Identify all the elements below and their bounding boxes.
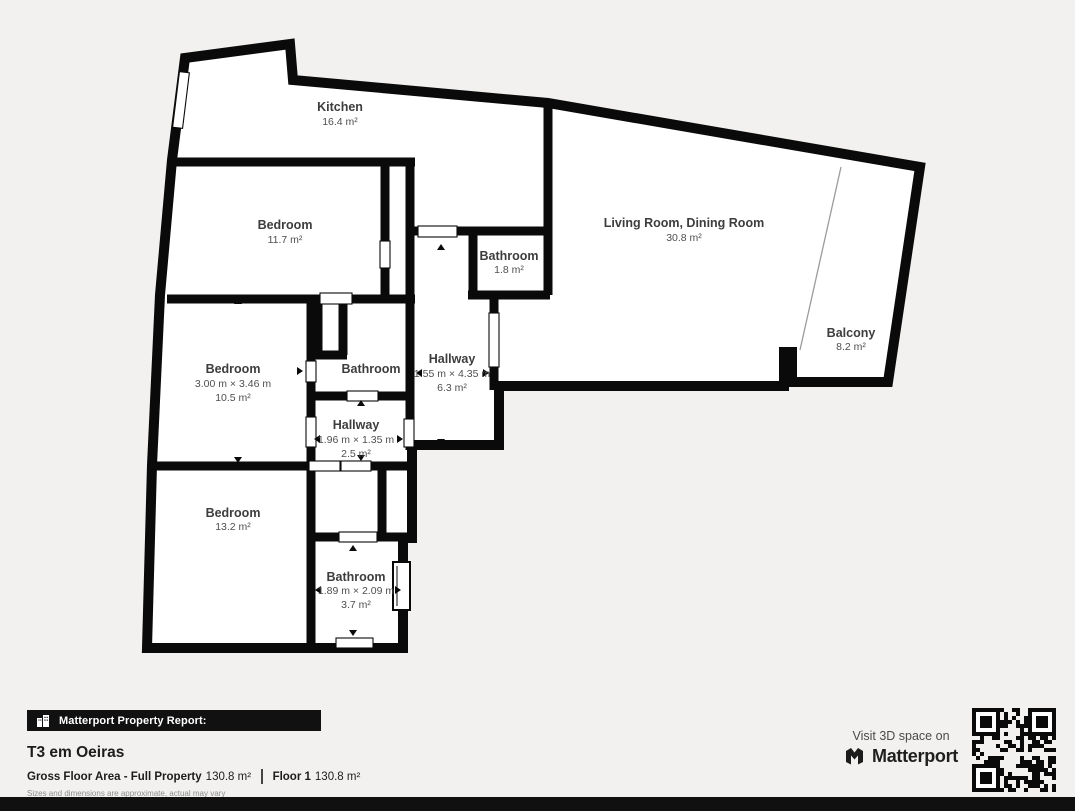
room-bathroom-small-area: 1.8 m² [494, 264, 524, 276]
door-opening [309, 461, 340, 471]
floor-plan: Kitchen 16.4 m² Bedroom 11.7 m² Bathroom… [0, 0, 1075, 700]
building-icon [36, 714, 51, 727]
property-report-page: { "plan": { "rooms": [ {"id":"kitchen","… [0, 0, 1075, 811]
matterport-logo-row: Matterport [844, 746, 958, 767]
room-living-area: 30.8 m² [666, 232, 702, 244]
floor-value: 130.8 m² [315, 771, 360, 783]
bottom-page-bar [0, 797, 1075, 811]
floor-area [147, 44, 920, 648]
room-hallway-small-area: 2.5 m² [341, 448, 371, 460]
door-opening [306, 361, 316, 382]
room-hallway-long-dims: 1.55 m × 4.35 m [414, 368, 490, 380]
door-opening [339, 532, 377, 542]
room-bedroom-middle-name: Bedroom [206, 362, 261, 376]
property-title: T3 em Oeiras [27, 744, 124, 762]
door-opening [404, 419, 414, 447]
room-balcony-name: Balcony [827, 326, 876, 340]
room-bedroom-top-name: Bedroom [258, 218, 313, 232]
room-bedroom-middle-dims: 3.00 m × 3.46 m [195, 378, 271, 390]
report-bar-label: Matterport Property Report: [59, 715, 207, 727]
room-bedroom-bottom-area: 13.2 m² [215, 521, 251, 533]
window [393, 562, 410, 610]
room-bathroom-bottom-area: 3.7 m² [341, 599, 371, 611]
room-hallway-long-area: 6.3 m² [437, 382, 467, 394]
room-bedroom-bottom-name: Bedroom [206, 506, 261, 520]
door-opening [320, 293, 352, 304]
room-kitchen-area: 16.4 m² [322, 116, 358, 128]
room-bedroom-top-area: 11.7 m² [268, 234, 303, 246]
qr-code [972, 708, 1056, 792]
room-bathroom-bottom-dims: 1.89 m × 2.09 m [318, 585, 394, 597]
report-title-bar: Matterport Property Report: [27, 710, 321, 731]
room-bathroom-bottom-name: Bathroom [326, 570, 385, 584]
matterport-logo-icon [844, 746, 865, 767]
vertical-separator [261, 769, 263, 784]
qr-code-graphic [972, 708, 1056, 792]
floor-label: Floor 1 [273, 771, 311, 783]
room-bathroom-small-name: Bathroom [479, 249, 538, 263]
visit-3d-label: Visit 3D space on [844, 729, 958, 743]
door-opening [418, 226, 457, 237]
gross-floor-area-label: Gross Floor Area - Full Property [27, 771, 202, 783]
door-opening [347, 391, 378, 401]
door-opening [341, 461, 371, 471]
area-summary-line: Gross Floor Area - Full Property 130.8 m… [27, 769, 360, 784]
room-bathroom-middle-name: Bathroom [341, 362, 400, 376]
door-opening [336, 638, 373, 648]
door-opening [306, 417, 316, 447]
room-balcony-area: 8.2 m² [836, 341, 866, 353]
room-bedroom-middle-area: 10.5 m² [215, 392, 251, 404]
visit-3d-block: Visit 3D space on Matterport [844, 729, 958, 767]
door-opening [380, 241, 390, 268]
room-hallway-long-name: Hallway [429, 352, 476, 366]
window [489, 313, 499, 367]
room-hallway-small-dims: 1.96 m × 1.35 m [318, 434, 394, 446]
room-hallway-small-name: Hallway [333, 418, 380, 432]
room-kitchen-name: Kitchen [317, 100, 363, 114]
matterport-wordmark: Matterport [872, 746, 958, 767]
gross-floor-area-value: 130.8 m² [206, 771, 251, 783]
room-living-name: Living Room, Dining Room [604, 216, 764, 230]
